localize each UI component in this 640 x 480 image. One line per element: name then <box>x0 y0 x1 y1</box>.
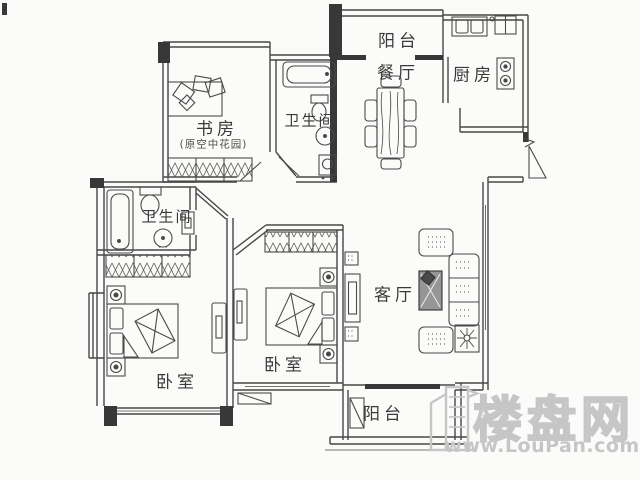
dining-table <box>365 76 416 169</box>
bathtub-icon <box>283 62 335 87</box>
tv-cabinet <box>345 252 360 341</box>
coffee-table <box>419 271 442 310</box>
entrance-door-leaf <box>529 146 546 178</box>
bed-mid <box>266 268 337 363</box>
armchair-top <box>419 229 453 256</box>
room-label-bedroom-mid: 卧室 <box>260 351 306 376</box>
study-cabinet <box>168 158 252 181</box>
fridge-icon <box>495 16 516 34</box>
bathtub-left-icon <box>107 190 133 253</box>
room-label-balcony-top: 阳台 <box>374 27 420 52</box>
room-label-study-note: (原空中花园) <box>179 137 248 152</box>
wardrobe-mid <box>265 232 337 252</box>
bedroom-left-door-leaf <box>212 303 226 353</box>
watermark-url-text: www.LouPan.com <box>444 435 639 457</box>
bedroom-mid-door-leaf <box>234 289 247 340</box>
stove-icon <box>497 58 514 89</box>
sofa <box>449 254 479 326</box>
room-label-bath-left: 卫生间 <box>139 206 192 227</box>
study-sofa-set <box>168 76 225 116</box>
room-label-balcony-bottom: 阳台 <box>359 400 405 425</box>
room-label-bath-top: 卫生间 <box>282 110 335 131</box>
bed-left <box>107 286 178 376</box>
flower-box <box>238 393 271 404</box>
sink-left-icon <box>154 229 172 247</box>
armchair-bottom <box>419 327 453 353</box>
room-label-dining: 餐厅 <box>373 59 419 84</box>
plant-icon <box>455 325 479 352</box>
bath-top-door-leaf <box>279 157 299 176</box>
floorplan: 阳台 餐厅 厨房 卫生间 书房 (原空中花园) 卫生间 卧室 卧室 客厅 阳台 … <box>0 0 640 480</box>
room-label-bedroom-left: 卧室 <box>152 368 198 393</box>
room-label-kitchen: 厨房 <box>449 61 495 86</box>
room-label-living: 客厅 <box>370 281 416 306</box>
wardrobe-left <box>106 255 190 277</box>
